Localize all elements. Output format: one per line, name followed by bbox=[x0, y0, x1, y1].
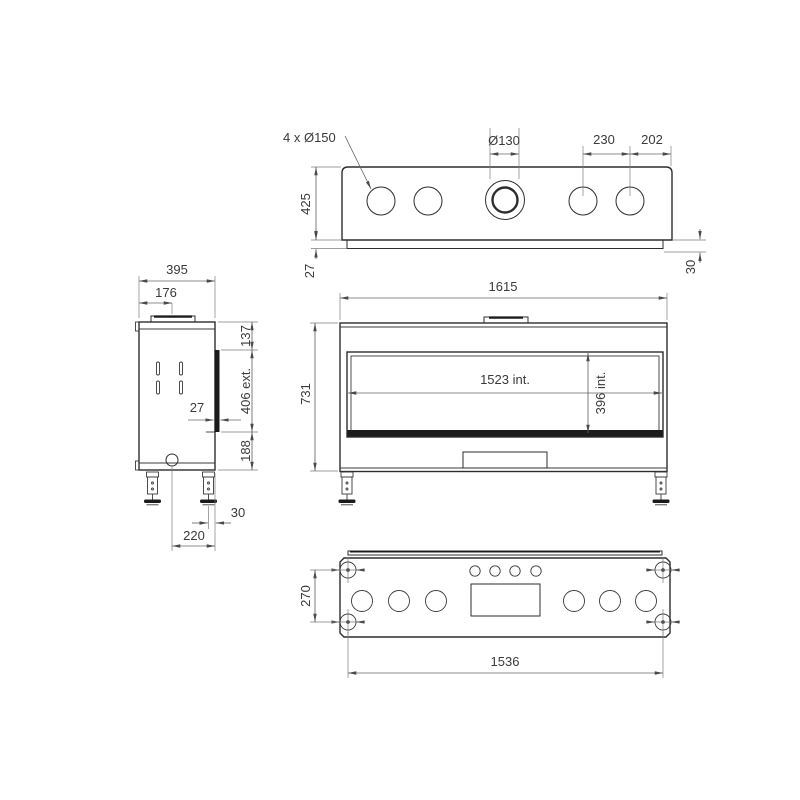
front-view: 1615 731 1523 int. 396 int. bbox=[298, 279, 670, 505]
dim-interior-height-396: 396 int. bbox=[593, 372, 608, 415]
flue-collar-inner bbox=[493, 188, 518, 213]
dim-height-731: 731 bbox=[298, 383, 313, 405]
dim-top-section-137: 137 bbox=[238, 325, 253, 347]
dim-leg-depth-270: 270 bbox=[298, 585, 313, 607]
side-leg-back bbox=[200, 472, 217, 505]
side-vent-slots bbox=[157, 362, 183, 394]
bottom-air-holes bbox=[352, 591, 657, 612]
top-view-body bbox=[342, 167, 672, 249]
side-view: 395 176 137 406 ext. 188 27 30 bbox=[136, 262, 259, 551]
dim-depth-395: 395 bbox=[166, 262, 188, 277]
front-window bbox=[347, 352, 663, 437]
dim-edge-offset: 202 bbox=[641, 132, 663, 147]
dim-leg-back-30: 30 bbox=[231, 505, 245, 520]
dim-bottom-section-188: 188 bbox=[238, 440, 253, 462]
top-view: 4 x Ø150 Ø130 230 202 425 27 bbox=[283, 128, 706, 278]
top-view-flue-holes bbox=[367, 181, 644, 220]
top-view-dimensions: 4 x Ø150 Ø130 230 202 425 27 bbox=[283, 128, 706, 278]
front-view-body bbox=[340, 317, 667, 472]
front-view-legs bbox=[339, 472, 670, 505]
side-leg-front bbox=[144, 472, 161, 505]
leg-position-front-right bbox=[646, 557, 680, 583]
dim-leg-width-1536: 1536 bbox=[491, 654, 520, 669]
side-view-body bbox=[136, 316, 220, 470]
side-drain-hole bbox=[166, 454, 178, 466]
side-view-dimensions: 395 176 137 406 ext. 188 27 30 bbox=[139, 262, 258, 551]
front-leg-left bbox=[339, 472, 356, 505]
dim-glass-27: 27 bbox=[190, 400, 204, 415]
front-view-dimensions: 1615 731 1523 int. 396 int. bbox=[298, 279, 667, 471]
bottom-small-holes bbox=[470, 566, 541, 576]
dim-depth-425: 425 bbox=[298, 193, 313, 215]
bottom-view: 270 1536 bbox=[298, 551, 680, 678]
technical-drawing-sheet: 4 x Ø150 Ø130 230 202 425 27 bbox=[0, 0, 800, 800]
dim-flue-offset-176: 176 bbox=[155, 285, 177, 300]
bottom-view-body bbox=[331, 551, 680, 637]
dim-interior-width-1523: 1523 int. bbox=[480, 372, 530, 387]
side-glass-edge bbox=[215, 350, 220, 432]
fireplace-dimension-drawing: 4 x Ø150 Ø130 230 202 425 27 bbox=[0, 0, 800, 800]
dim-flue-diameter: Ø130 bbox=[488, 133, 520, 148]
bottom-center-box bbox=[471, 584, 540, 616]
hole-150-2 bbox=[414, 187, 442, 215]
side-view-legs bbox=[144, 472, 217, 505]
dim-holes-callout: 4 x Ø150 bbox=[283, 130, 336, 145]
leg-position-back-right bbox=[646, 609, 680, 635]
dim-lip-27: 27 bbox=[302, 264, 317, 278]
dim-axis-back-220: 220 bbox=[183, 528, 205, 543]
hole-150-1 bbox=[367, 187, 395, 215]
dim-lip-30: 30 bbox=[683, 260, 698, 274]
bottom-view-dimensions: 270 1536 bbox=[298, 570, 663, 678]
dim-width-1615: 1615 bbox=[489, 279, 518, 294]
dim-hole-spacing: 230 bbox=[593, 132, 615, 147]
dim-glass-section-406: 406 ext. bbox=[238, 368, 253, 414]
front-control-panel bbox=[463, 452, 547, 468]
front-leg-right bbox=[653, 472, 670, 505]
bottom-leg-positions bbox=[331, 557, 680, 635]
